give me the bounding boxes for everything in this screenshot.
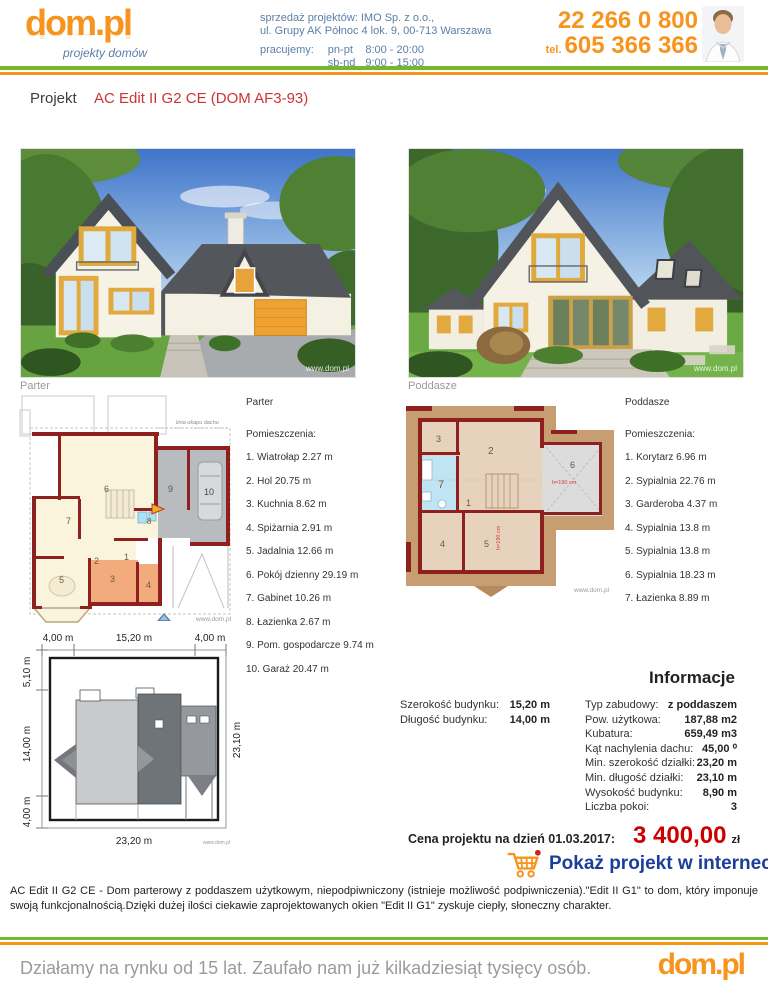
info-label: Liczba pokoi: xyxy=(585,800,649,815)
info-value: 23,20 m xyxy=(697,756,737,771)
room-number: 3 xyxy=(110,574,115,584)
floor-plan-parter-image: linia okapu dachu xyxy=(18,392,240,627)
info-row: Min. długość działki:23,10 m xyxy=(585,771,737,786)
info-label: Min. szerokość działki: xyxy=(585,756,695,771)
parter-heading: Parter xyxy=(246,397,396,408)
show-project-online-link[interactable]: Pokaż projekt w internecie xyxy=(505,848,768,880)
room-item: 7. Łazienka 8.89 m xyxy=(625,593,768,604)
cart-icon xyxy=(505,848,541,880)
height-note: h=190 cm xyxy=(552,480,577,486)
room-number: 3 xyxy=(436,434,441,444)
header-separator xyxy=(0,66,768,75)
watermark: www.dom.pl xyxy=(694,364,737,373)
info-row: Pow. użytkowa:187,88 m2 xyxy=(585,713,737,728)
informacje-heading: Informacje xyxy=(649,668,735,688)
price-value: 3 400,00 xyxy=(633,822,726,850)
tel-label: tel. xyxy=(546,44,562,56)
room-number: 4 xyxy=(146,580,151,590)
phone-numbers: 22 266 0 800 tel.605 366 366 xyxy=(546,8,698,63)
room-item: 3. Kuchnia 8.62 m xyxy=(246,499,396,510)
room-number: 8 xyxy=(147,517,152,526)
room-item: 8. Łazienka 2.67 m xyxy=(246,617,396,628)
info-row: Typ zabudowy:z poddaszem xyxy=(585,698,737,713)
room-number: 9 xyxy=(168,484,173,494)
room-item: 7. Gabinet 10.26 m xyxy=(246,593,396,604)
info-row: Kubatura:659,49 m3 xyxy=(585,727,737,742)
info-value: 187,88 m2 xyxy=(684,713,737,728)
hours-weekdays-value: 8:00 - 20:00 xyxy=(365,44,424,57)
company-info: sprzedaż projektów: IMO Sp. z o.o., ul. … xyxy=(260,12,491,70)
render-photo-garden: www.dom.pl xyxy=(408,148,744,378)
room-number: 2 xyxy=(94,556,99,566)
poddasze-rooms-label: Pomieszczenia: xyxy=(625,429,768,440)
info-row: Liczba pokoi:3 xyxy=(585,800,737,815)
price-currency: zł xyxy=(731,834,740,846)
site-plan-image: 4,00 m 15,20 m 4,00 m 5,10 m 14,00 m 4,0… xyxy=(18,628,250,856)
seller-line-2: ul. Grupy AK Północ 4 lok. 9, 00-713 War… xyxy=(260,25,491,38)
hours-weekdays-label: pn-pt xyxy=(328,44,356,57)
info-label: Wysokość budynku: xyxy=(585,786,683,801)
logo-reflection: dom.pl xyxy=(25,34,175,40)
phone-secondary-number: 605 366 366 xyxy=(565,32,698,59)
poddasze-room-list: Poddasze Pomieszczenia: 1. Korytarz 6.96… xyxy=(625,397,768,617)
info-row: Długość budynku:14,00 m xyxy=(400,713,550,728)
page-title: Projekt AC Edit II G2 CE (DOM AF3-93) xyxy=(30,90,308,107)
page: dom.pl dom.pl projekty domów sprzedaż pr… xyxy=(0,0,768,994)
project-parameters: Typ zabudowy:z poddaszem Pow. użytkowa:1… xyxy=(585,698,737,815)
room-item: 9. Pom. gospodarcze 9.74 m xyxy=(246,640,396,651)
consultant-photo xyxy=(702,6,744,62)
room-number: 7 xyxy=(66,516,71,526)
room-item: 10. Garaż 20.47 m xyxy=(246,664,396,675)
price-label: Cena projektu na dzień 01.03.2017: xyxy=(408,832,615,846)
dim-right: 23,10 m xyxy=(232,722,243,758)
room-item: 3. Garderoba 4.37 m xyxy=(625,499,768,510)
info-label: Szerokość budynku: xyxy=(400,698,499,713)
info-value: 3 xyxy=(731,800,737,815)
dim-top-left: 4,00 m xyxy=(43,633,74,644)
footer-separator xyxy=(0,937,768,945)
info-value: 659,49 m3 xyxy=(684,727,737,742)
info-row: Min. szerokość działki:23,20 m xyxy=(585,756,737,771)
plan-note: linia okapu dachu xyxy=(176,420,219,426)
room-number: 6 xyxy=(104,484,109,494)
separator-green-line xyxy=(0,937,768,940)
house-garden-render-image xyxy=(409,149,743,377)
site-plan: 4,00 m 15,20 m 4,00 m 5,10 m 14,00 m 4,0… xyxy=(18,628,250,856)
price-section: Cena projektu na dzień 01.03.2017: 3 400… xyxy=(408,822,748,850)
room-item: 5. Jadalnia 12.66 m xyxy=(246,546,396,557)
dim-left-top: 5,10 m xyxy=(22,657,33,688)
room-number: 10 xyxy=(204,487,214,497)
poddasze-heading: Poddasze xyxy=(625,397,768,408)
info-value: 14,00 m xyxy=(510,713,550,728)
floor-plan-parter: linia okapu dachu xyxy=(18,392,240,627)
separator-orange-line xyxy=(0,942,768,945)
info-label: Typ zabudowy: xyxy=(585,698,658,713)
seller-line-1: sprzedaż projektów: IMO Sp. z o.o., xyxy=(260,12,491,25)
room-number: 2 xyxy=(488,446,494,457)
footer-logo[interactable]: dom.pl xyxy=(658,948,744,982)
info-value: 8,90 m xyxy=(703,786,737,801)
room-number: 1 xyxy=(124,552,129,562)
room-number: 7 xyxy=(438,479,444,491)
room-number: 1 xyxy=(466,498,471,508)
room-item: 2. Sypialnia 22.76 m xyxy=(625,476,768,487)
room-item: 1. Wiatrołap 2.27 m xyxy=(246,452,396,463)
info-row: Kąt nachylenia dachu:45,00 ⁰ xyxy=(585,742,737,757)
dim-top-right: 4,00 m xyxy=(195,633,226,644)
room-item: 5. Sypialnia 13.8 m xyxy=(625,546,768,557)
house-front-render-image xyxy=(21,149,355,377)
watermark: www.dom.pl xyxy=(203,840,230,846)
dim-bottom: 23,20 m xyxy=(116,836,152,847)
info-value: 23,10 m xyxy=(697,771,737,786)
watermark: www.dom.pl xyxy=(306,364,349,373)
room-number: 5 xyxy=(59,575,64,585)
footer-slogan: Działamy na rynku od 15 lat. Zaufało nam… xyxy=(20,958,591,979)
room-number: 5 xyxy=(484,539,489,549)
room-item: 1. Korytarz 6.96 m xyxy=(625,452,768,463)
separator-orange-line xyxy=(0,72,768,75)
render-photo-front: www.dom.pl xyxy=(20,148,356,378)
header: dom.pl dom.pl projekty domów sprzedaż pr… xyxy=(0,0,768,66)
consultant-avatar-image xyxy=(702,6,744,62)
info-row: Wysokość budynku:8,90 m xyxy=(585,786,737,801)
building-dimensions: Szerokość budynku:15,20 m Długość budynk… xyxy=(400,698,550,727)
caption-parter: Parter xyxy=(20,380,50,392)
floor-plan-poddasze-image: h=190 cm h=190 cm 3 2 7 1 6 4 5 www.dom.… xyxy=(396,392,620,597)
logo-tagline: projekty domów xyxy=(63,46,147,60)
phone-secondary: tel.605 366 366 xyxy=(546,33,698,63)
room-number: 4 xyxy=(440,539,445,549)
room-item: 2. Hol 20.75 m xyxy=(246,476,396,487)
room-item: 4. Sypialnia 13.8 m xyxy=(625,523,768,534)
room-number: 6 xyxy=(570,460,575,470)
info-label: Kąt nachylenia dachu: xyxy=(585,742,693,757)
info-value: z poddaszem xyxy=(668,698,737,713)
parter-rooms-label: Pomieszczenia: xyxy=(246,429,396,440)
room-item: 6. Pokój dzienny 29.19 m xyxy=(246,570,396,581)
info-label: Długość budynku: xyxy=(400,713,487,728)
project-description: AC Edit II G2 CE - Dom parterowy z podda… xyxy=(10,884,758,914)
info-row: Szerokość budynku:15,20 m xyxy=(400,698,550,713)
parter-room-list: Parter Pomieszczenia: 1. Wiatrołap 2.27 … xyxy=(246,397,396,687)
watermark: www.dom.pl xyxy=(573,587,610,594)
info-value: 15,20 m xyxy=(510,698,550,713)
project-name[interactable]: AC Edit II G2 CE (DOM AF3-93) xyxy=(94,90,308,107)
floor-plan-poddasze: h=190 cm h=190 cm 3 2 7 1 6 4 5 www.dom.… xyxy=(396,392,620,597)
dim-left-bottom: 4,00 m xyxy=(22,797,33,828)
room-item: 4. Spiżarnia 2.91 m xyxy=(246,523,396,534)
info-label: Min. długość działki: xyxy=(585,771,683,786)
project-label: Projekt xyxy=(30,90,77,107)
height-note: h=190 cm xyxy=(496,525,502,550)
cta-label: Pokaż projekt w internecie xyxy=(549,853,768,875)
caption-poddasze: Poddasze xyxy=(408,380,457,392)
separator-green-line xyxy=(0,66,768,70)
phone-primary: 22 266 0 800 xyxy=(546,8,698,33)
dim-left-middle: 14,00 m xyxy=(22,726,33,762)
watermark: www.dom.pl xyxy=(195,616,232,623)
info-label: Pow. użytkowa: xyxy=(585,713,661,728)
room-item: 6. Sypialnia 18.23 m xyxy=(625,570,768,581)
dim-top-center: 15,20 m xyxy=(116,633,152,644)
info-value: 45,00 ⁰ xyxy=(702,742,737,757)
logo[interactable]: dom.pl dom.pl projekty domów xyxy=(25,6,175,54)
info-label: Kubatura: xyxy=(585,727,633,742)
